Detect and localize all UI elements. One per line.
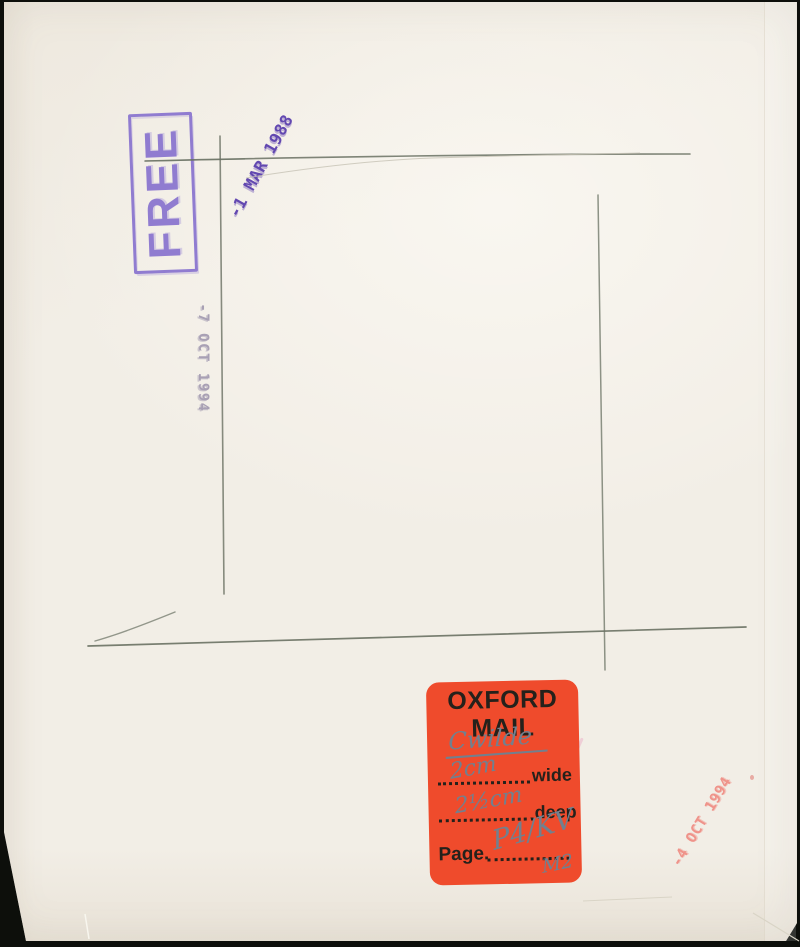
oxford-mail-sticker: OXFORD MAIL Cwilde 2cm wide 2½cm deep Pa…: [426, 679, 582, 885]
page-label: Page.: [438, 844, 489, 864]
photo-back-paper: [3, 2, 797, 941]
date-stamp-oct-1994-gray: -7 OCT 1994: [195, 303, 211, 412]
handwritten-page-value-extra: M2: [541, 852, 574, 877]
free-box-stamp: FREE: [128, 112, 198, 274]
free-stamp-label: FREE: [134, 126, 191, 260]
paper-edge-strip: [765, 2, 796, 941]
handwritten-name: Cwilde: [446, 722, 548, 759]
sticker-title-line1: OXFORD: [426, 686, 578, 714]
wide-label: wide: [532, 766, 572, 785]
red-ink-dot: [750, 775, 754, 780]
